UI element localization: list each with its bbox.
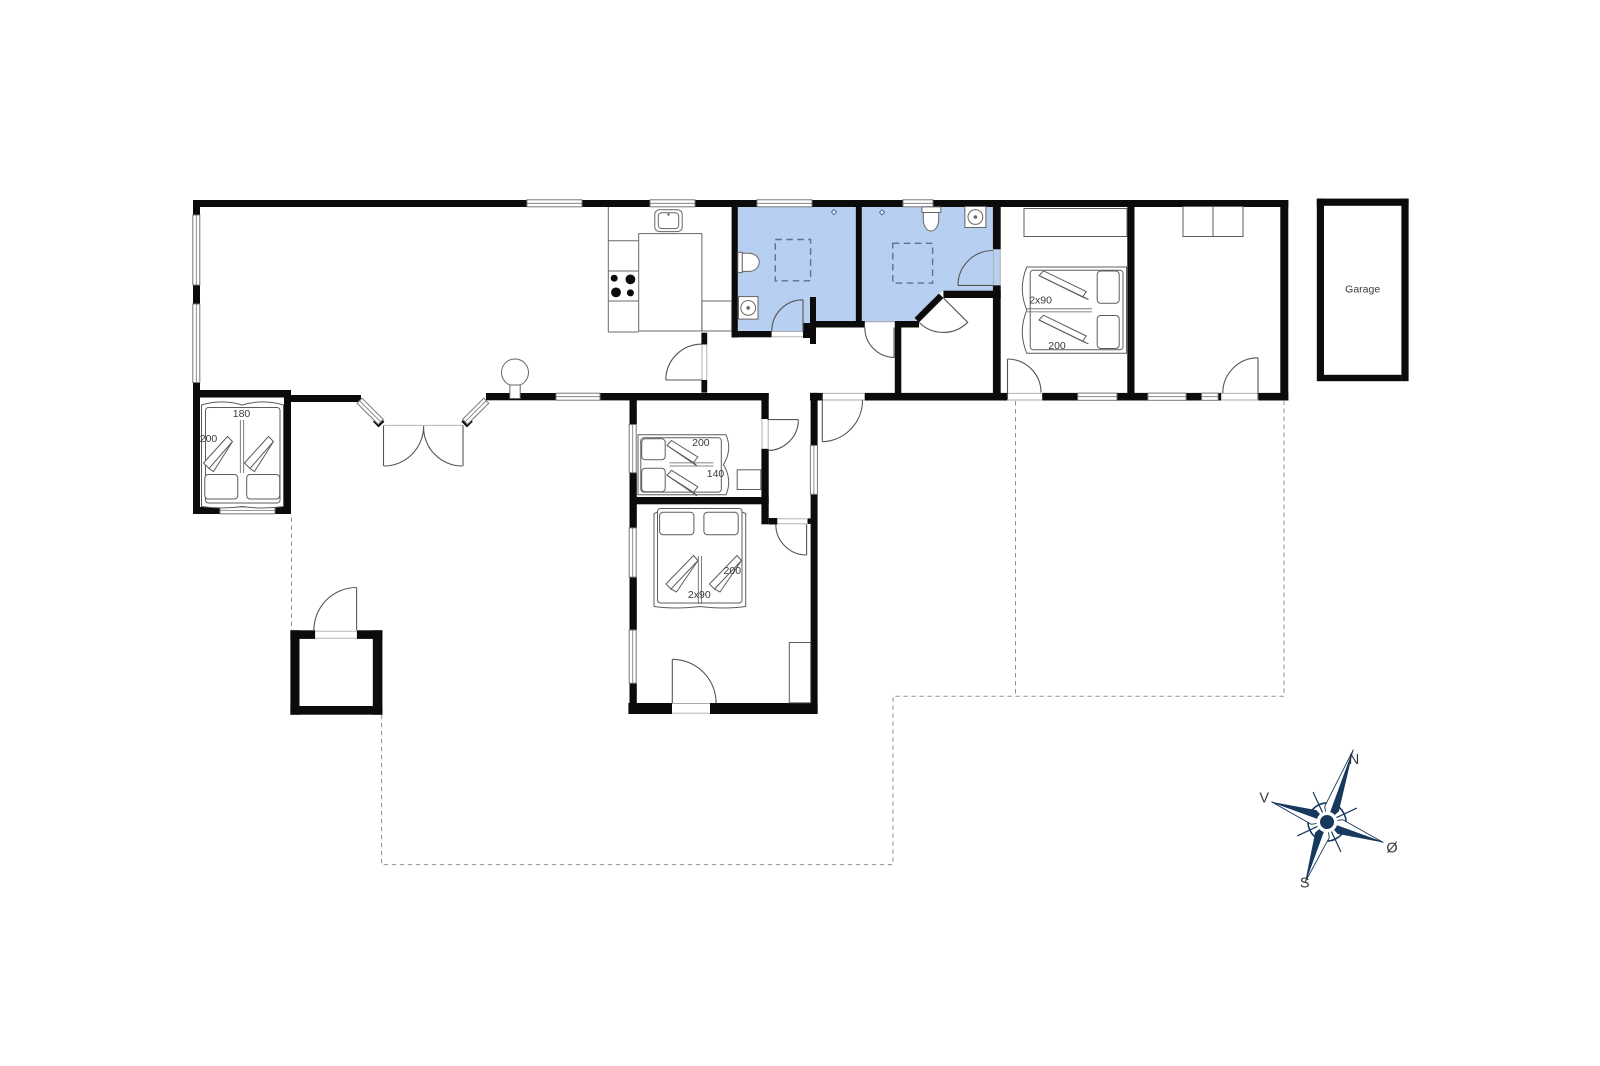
svg-text:200: 200 — [724, 565, 742, 577]
svg-text:Ø: Ø — [1386, 840, 1397, 856]
svg-text:V: V — [1259, 791, 1269, 807]
svg-text:200: 200 — [200, 433, 218, 445]
svg-text:2x90: 2x90 — [1029, 295, 1052, 307]
svg-text:N: N — [1349, 752, 1359, 768]
svg-text:200: 200 — [692, 437, 710, 449]
svg-text:Garage: Garage — [1345, 284, 1380, 296]
svg-text:180: 180 — [233, 408, 251, 420]
svg-text:200: 200 — [1048, 340, 1066, 352]
svg-text:2x90: 2x90 — [688, 589, 711, 601]
svg-text:140: 140 — [707, 468, 725, 480]
svg-text:S: S — [1300, 876, 1310, 892]
